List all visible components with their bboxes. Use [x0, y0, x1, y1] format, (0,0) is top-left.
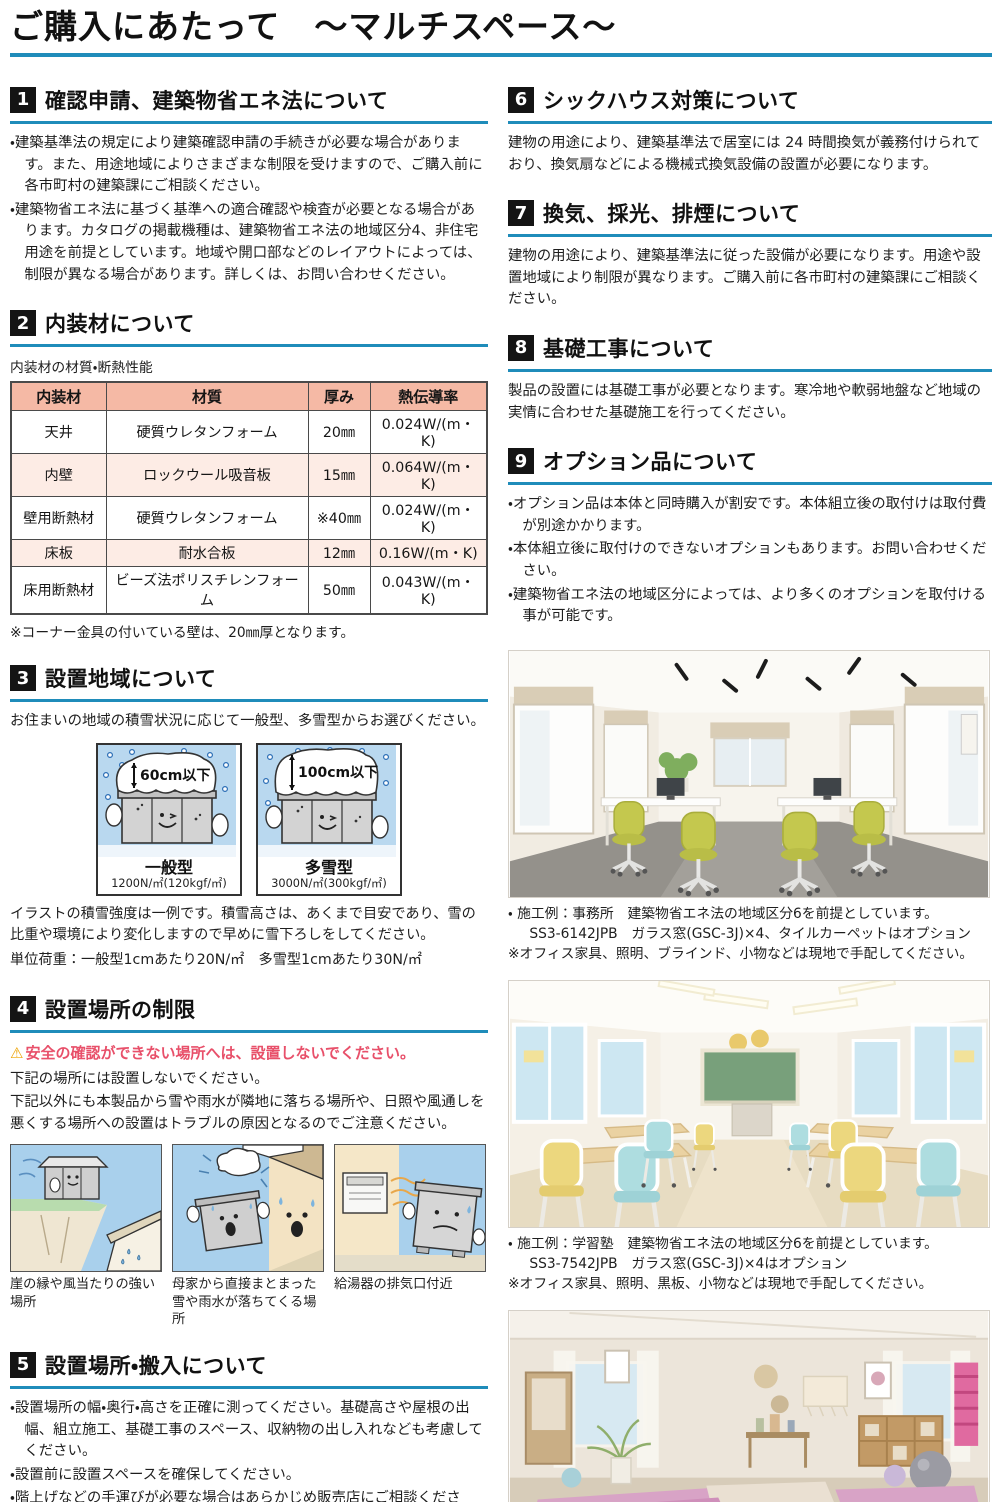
section-confirmation-application: 1 確認申請、建築物省エネ法について 建築基準法の規定により建築確認申請の手続き… — [10, 85, 488, 286]
example-yoga-studio: 施工例：ヨガ教室 建築物省エネ法の地域区分6を前提としています。 SS3-754… — [508, 1310, 992, 1502]
section-8-header: 8 基礎工事について — [508, 333, 992, 363]
section-1-number-badge: 1 — [10, 87, 36, 113]
photo-caption-line: SS3-6142JPB ガラス窓(GSC-3J)×4、タイルカーペットはオプショ… — [508, 924, 992, 944]
table-row: 壁用断熱材 硬質ウレタンフォーム ※40㎜ 0.024W/(m・K) — [11, 497, 487, 540]
photo-caption-line: ※オフィス家具、照明、ブラインド、小物などは現地で手配してください。 — [508, 944, 992, 964]
table-cell: 0.024W/(m・K) — [370, 411, 487, 454]
table-row: 天井 硬質ウレタンフォーム 20㎜ 0.024W/(m・K) — [11, 411, 487, 454]
section-6-divider — [508, 121, 992, 124]
section-2-divider — [10, 344, 488, 347]
office-photo — [508, 650, 990, 898]
office-photo-captions: 施工例：事務所 建築物省エネ法の地域区分6を前提としています。 SS3-6142… — [508, 904, 992, 964]
section-9-number-badge: 9 — [508, 448, 534, 474]
section-3-number-badge: 3 — [10, 665, 36, 691]
section-9-bullets: オプション品は本体と同時購入が割安です。本体組立後の取付けは取付費が別途かかりま… — [508, 494, 992, 628]
table-row: 内壁 ロックウール吸音板 15㎜ 0.064W/(m・K) — [11, 454, 487, 497]
restriction-illustrations: 崖の縁や風当たりの強い場所 — [10, 1144, 488, 1327]
photo-caption-line: ※オフィス家具、照明、黒板、小物などは現地で手配してください。 — [508, 1274, 992, 1294]
section-ventilation: 7 換気、採光、排煙について 建物の用途により、建築基準法に従った設備が必要にな… — [508, 198, 992, 311]
table-cell: 壁用断熱材 — [11, 497, 106, 540]
snow-type-heavy-figure: 100cm以下 多雪型 3000N/㎡(300kgf/㎡) — [256, 743, 402, 896]
snow-type-name: 一般型 — [98, 859, 240, 877]
snow-type-general-figure: 60cm以下 一般型 1200N/㎡(120kgf/㎡) — [96, 743, 242, 896]
table-cell: 12㎜ — [308, 540, 370, 567]
table-cell: 0.043W/(m・K) — [370, 567, 487, 615]
table-cell: 内壁 — [11, 454, 106, 497]
table-row: 床板 耐水合板 12㎜ 0.16W/(m・K) — [11, 540, 487, 567]
section-8-body: 製品の設置には基礎工事が必要となります。寒冷地や軟弱地盤など地域の実情に合わせた… — [508, 381, 992, 424]
section-9-divider — [508, 482, 992, 485]
snow-amount-label: 60cm以下 — [140, 768, 210, 784]
warning-icon: ⚠ — [10, 1044, 23, 1062]
falling-snow-illustration — [172, 1144, 324, 1272]
section-8-divider — [508, 369, 992, 372]
restriction-illustration-cliff: 崖の縁や風当たりの強い場所 — [10, 1144, 163, 1310]
section-6-number-badge: 6 — [508, 87, 534, 113]
table-cell: 天井 — [11, 411, 106, 454]
snow-general-illustration: 60cm以下 — [98, 745, 236, 857]
bullet-item: 階上げなどの手運びが必要な場合はあらかじめ販売店にご相談ください。 — [10, 1488, 488, 1502]
table-header-cell: 材質 — [106, 382, 308, 411]
section-1-header: 1 確認申請、建築物省エネ法について — [10, 85, 488, 115]
section-2-header: 2 内装材について — [10, 308, 488, 338]
section-location-restrictions: 4 設置場所の制限 ⚠ 安全の確認ができない場所へは、設置しないでください。 下… — [10, 994, 488, 1328]
section-4-header: 4 設置場所の制限 — [10, 994, 488, 1024]
section-installation-carry-in: 5 設置場所・搬入について 設置場所の幅・奥行・高さを正確に測ってください。基礎… — [10, 1350, 488, 1502]
page-title: ご購入にあたって ～マルチスペース～ — [10, 8, 992, 46]
table-header-cell: 熱伝導率 — [370, 382, 487, 411]
bullet-item: 設置前に設置スペースを確保してください。 — [10, 1465, 488, 1487]
section-5-number-badge: 5 — [10, 1352, 36, 1378]
section-7-title: 換気、採光、排煙について — [543, 198, 800, 228]
yoga-studio-photo — [508, 1310, 990, 1502]
section-1-bullets: 建築基準法の規定により建築確認申請の手続きが必要な場合があります。また、用途地域… — [10, 133, 488, 286]
bullet-item: 建築物省エネ法に基づく基準への適合確認や検査が必要となる場合があります。カタログ… — [10, 200, 488, 286]
section-8-number-badge: 8 — [508, 335, 534, 361]
restriction-illustration-exhaust: 給湯器の排気口付近 — [334, 1144, 487, 1293]
section-6-header: 6 シックハウス対策について — [508, 85, 992, 115]
table-cell: 0.064W/(m・K) — [370, 454, 487, 497]
bullet-item: オプション品は本体と同時購入が割安です。本体組立後の取付けは取付費が別途かかりま… — [508, 494, 992, 537]
section-2-title: 内装材について — [45, 308, 195, 338]
table-cell: 15㎜ — [308, 454, 370, 497]
section-9-title: オプション品について — [543, 446, 757, 476]
catalog-page: ご購入にあたって ～マルチスペース～ 1 確認申請、建築物省エネ法について 建築… — [0, 0, 1000, 1502]
section-7-number-badge: 7 — [508, 200, 534, 226]
snow-load-rating: 1200N/㎡(120kgf/㎡) — [98, 877, 240, 894]
snow-type-name: 多雪型 — [258, 859, 400, 877]
table-header-cell: 厚み — [308, 382, 370, 411]
bullet-item: 設置場所の幅・奥行・高さを正確に測ってください。基礎高さや屋根の出幅、組立施工、… — [10, 1398, 488, 1463]
table-cell: 床板 — [11, 540, 106, 567]
section-3-divider — [10, 699, 488, 702]
table-cell: 0.024W/(m・K) — [370, 497, 487, 540]
table-header-row: 内装材 材質 厚み 熱伝導率 — [11, 382, 487, 411]
table-cell: 耐水合板 — [106, 540, 308, 567]
table-cell: 硬質ウレタンフォーム — [106, 411, 308, 454]
bullet-item: 本体組立後に取付けのできないオプションもあります。お問い合わせください。 — [508, 539, 992, 582]
section-2-number-badge: 2 — [10, 310, 36, 336]
snow-type-figures: 60cm以下 一般型 1200N/㎡(120kgf/㎡) — [10, 743, 488, 896]
safety-warning: ⚠ 安全の確認ができない場所へは、設置しないでください。 — [10, 1042, 488, 1063]
section-5-header: 5 設置場所・搬入について — [10, 1350, 488, 1380]
table-cell: 20㎜ — [308, 411, 370, 454]
section-3-header: 3 設置地域について — [10, 663, 488, 693]
section-8-title: 基礎工事について — [543, 333, 714, 363]
left-column: 1 確認申請、建築物省エネ法について 建築基準法の規定により建築確認申請の手続き… — [10, 85, 488, 1502]
snow-note-2: 単位荷重：一般型1cmあたり20N/㎡ 多雪型1cmあたり30N/㎡ — [10, 950, 488, 971]
classroom-photo — [508, 980, 990, 1228]
section-7-body: 建物の用途により、建築基準法に従った設備が必要になります。用途や設置地域により制… — [508, 246, 992, 311]
section-7-header: 7 換気、採光、排煙について — [508, 198, 992, 228]
section-5-divider — [10, 1386, 488, 1389]
classroom-photo-captions: 施工例：学習塾 建築物省エネ法の地域区分6を前提としています。 SS3-7542… — [508, 1234, 992, 1294]
section-9-header: 9 オプション品について — [508, 446, 992, 476]
section-foundation-work: 8 基礎工事について 製品の設置には基礎工事が必要となります。寒冷地や軟弱地盤な… — [508, 333, 992, 424]
table-cell: 0.16W/(m・K) — [370, 540, 487, 567]
water-heater-exhaust-illustration — [334, 1144, 486, 1272]
section-4-divider — [10, 1030, 488, 1033]
section-7-divider — [508, 234, 992, 237]
photo-caption-line: 施工例：学習塾 建築物省エネ法の地域区分6を前提としています。 — [508, 1234, 992, 1254]
section-5-bullets: 設置場所の幅・奥行・高さを正確に測ってください。基礎高さや屋根の出幅、組立施工、… — [10, 1398, 488, 1502]
section-6-title: シックハウス対策について — [543, 85, 799, 115]
section-interior-materials: 2 内装材について 内装材の材質・断熱性能 内装材 材質 厚み 熱伝導率 — [10, 308, 488, 641]
example-office: 施工例：事務所 建築物省エネ法の地域区分6を前提としています。 SS3-6142… — [508, 650, 992, 964]
snow-amount-label: 100cm以下 — [298, 765, 378, 781]
snow-load-rating: 3000N/㎡(300kgf/㎡) — [258, 877, 400, 894]
section-6-body: 建物の用途により、建築基準法で居室には 24 時間換気が義務付けられており、換気… — [508, 133, 992, 176]
illustration-caption: 給湯器の排気口付近 — [334, 1276, 487, 1293]
section-options: 9 オプション品について オプション品は本体と同時購入が割安です。本体組立後の取… — [508, 446, 992, 628]
bullet-item: 建築物省エネ法の地域区分によっては、より多くのオプションを取付ける事が可能です。 — [508, 585, 992, 628]
snow-note-1: イラストの積雪強度は一例です。積雪高さは、あくまで目安であり、雪の比重や環境によ… — [10, 904, 488, 947]
section-4-title: 設置場所の制限 — [45, 994, 196, 1024]
table-cell: ビーズ法ポリスチレンフォーム — [106, 567, 308, 615]
warning-text: 安全の確認ができない場所へは、設置しないでください。 — [25, 1042, 415, 1063]
restriction-line-2: 下記以外にも本製品から雪や雨水が隣地に落ちる場所や、日照や風通しを悪くする場所へ… — [10, 1092, 488, 1135]
two-column-layout: 1 確認申請、建築物省エネ法について 建築基準法の規定により建築確認申請の手続き… — [10, 85, 992, 1502]
bullet-item: 建築基準法の規定により建築確認申請の手続きが必要な場合があります。また、用途地域… — [10, 133, 488, 198]
restriction-line-1: 下記の場所には設置しないでください。 — [10, 1069, 488, 1091]
table-note: ※コーナー金具の付いている壁は、20㎜厚となります。 — [10, 621, 488, 641]
photo-caption-line: 施工例：事務所 建築物省エネ法の地域区分6を前提としています。 — [508, 904, 992, 924]
section-sick-house: 6 シックハウス対策について 建物の用途により、建築基準法で居室には 24 時間… — [508, 85, 992, 176]
table-header-cell: 内装材 — [11, 382, 106, 411]
section-3-title: 設置地域について — [45, 663, 216, 693]
cliff-illustration — [10, 1144, 162, 1272]
table-cell: 硬質ウレタンフォーム — [106, 497, 308, 540]
table-cell: 床用断熱材 — [11, 567, 106, 615]
section-1-title: 確認申請、建築物省エネ法について — [45, 85, 388, 115]
right-column: 6 シックハウス対策について 建物の用途により、建築基準法で居室には 24 時間… — [508, 85, 992, 1502]
restriction-illustration-falling-snow: 母家から直接まとまった雪や雨水が落ちてくる場所 — [172, 1144, 325, 1327]
interior-materials-table: 内装材 材質 厚み 熱伝導率 天井 硬質ウレタンフォーム 20㎜ 0.024W/… — [10, 381, 488, 615]
section-3-intro: お住まいの地域の積雪状況に応じて一般型、多雪型からお選びください。 — [10, 711, 488, 733]
example-cram-school: 施工例：学習塾 建築物省エネ法の地域区分6を前提としています。 SS3-7542… — [508, 980, 992, 1294]
section-installation-region: 3 設置地域について お住まいの地域の積雪状況に応じて一般型、多雪型からお選びく… — [10, 663, 488, 971]
section-4-number-badge: 4 — [10, 996, 36, 1022]
snow-heavy-illustration: 100cm以下 — [258, 745, 396, 857]
section-5-title: 設置場所・搬入について — [45, 1350, 267, 1380]
table-row: 床用断熱材 ビーズ法ポリスチレンフォーム 50㎜ 0.043W/(m・K) — [11, 567, 487, 615]
table-cell: ※40㎜ — [308, 497, 370, 540]
illustration-caption: 母家から直接まとまった雪や雨水が落ちてくる場所 — [172, 1276, 325, 1327]
table-caption: 内装材の材質・断熱性能 — [10, 356, 488, 376]
title-divider — [10, 53, 992, 57]
photo-caption-line: SS3-7542JPB ガラス窓(GSC-3J)×4はオプション — [508, 1254, 992, 1274]
table-cell: 50㎜ — [308, 567, 370, 615]
section-1-divider — [10, 121, 488, 124]
table-cell: ロックウール吸音板 — [106, 454, 308, 497]
illustration-caption: 崖の縁や風当たりの強い場所 — [10, 1276, 163, 1310]
